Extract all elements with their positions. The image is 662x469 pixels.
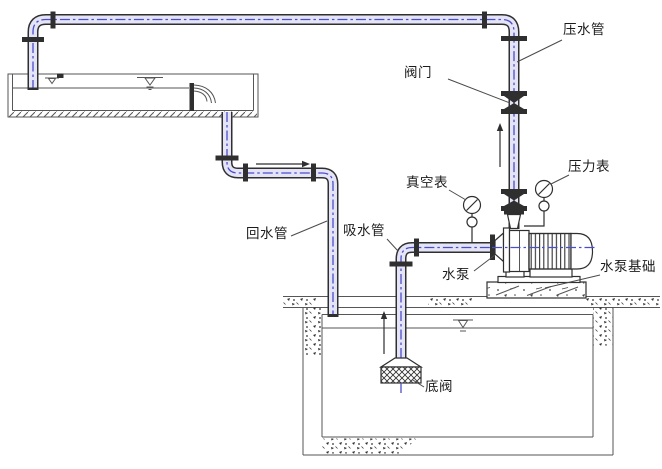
label-pump: 水泵 bbox=[442, 267, 470, 282]
flow-arrow-suction bbox=[381, 311, 387, 354]
motor-end-cap bbox=[571, 234, 593, 270]
flow-arrow-discharge bbox=[497, 123, 503, 167]
label-vacuum-gauge: 真空表 bbox=[406, 175, 448, 190]
diagram-canvas bbox=[0, 0, 662, 469]
foot-valve-symbol bbox=[381, 358, 421, 394]
label-pump-foundation: 水泵基础 bbox=[600, 259, 656, 274]
label-valve: 阀门 bbox=[404, 65, 432, 80]
water-level-symbol-pit bbox=[453, 320, 473, 331]
water-level-symbol-inlet bbox=[45, 74, 64, 84]
label-pressure-gauge: 压力表 bbox=[568, 159, 610, 174]
tank-partition bbox=[190, 83, 195, 111]
pump-assembly bbox=[487, 228, 596, 298]
gate-valve-symbol bbox=[501, 91, 527, 114]
pressure-pipe bbox=[28, 20, 515, 230]
return-pipe bbox=[227, 112, 339, 317]
elevated-tank bbox=[8, 74, 258, 118]
vacuum-gauge-symbol bbox=[464, 197, 481, 243]
pump-system-diagram: 压水管 阀门 真空表 压力表 回水管 吸水管 水泵 水泵基础 底阀 bbox=[0, 0, 662, 469]
tank-spout bbox=[194, 85, 216, 103]
label-foot-valve: 底阀 bbox=[425, 379, 453, 394]
pressure-gauge-symbol bbox=[524, 181, 553, 227]
check-valve-symbol bbox=[501, 189, 527, 229]
label-suction-pipe: 吸水管 bbox=[343, 223, 385, 238]
label-pressure-pipe: 压水管 bbox=[563, 22, 605, 37]
flow-arrow-return bbox=[256, 161, 310, 167]
label-return-pipe: 回水管 bbox=[246, 226, 288, 241]
flow-arrows bbox=[256, 123, 503, 354]
sump-pit bbox=[283, 297, 660, 456]
